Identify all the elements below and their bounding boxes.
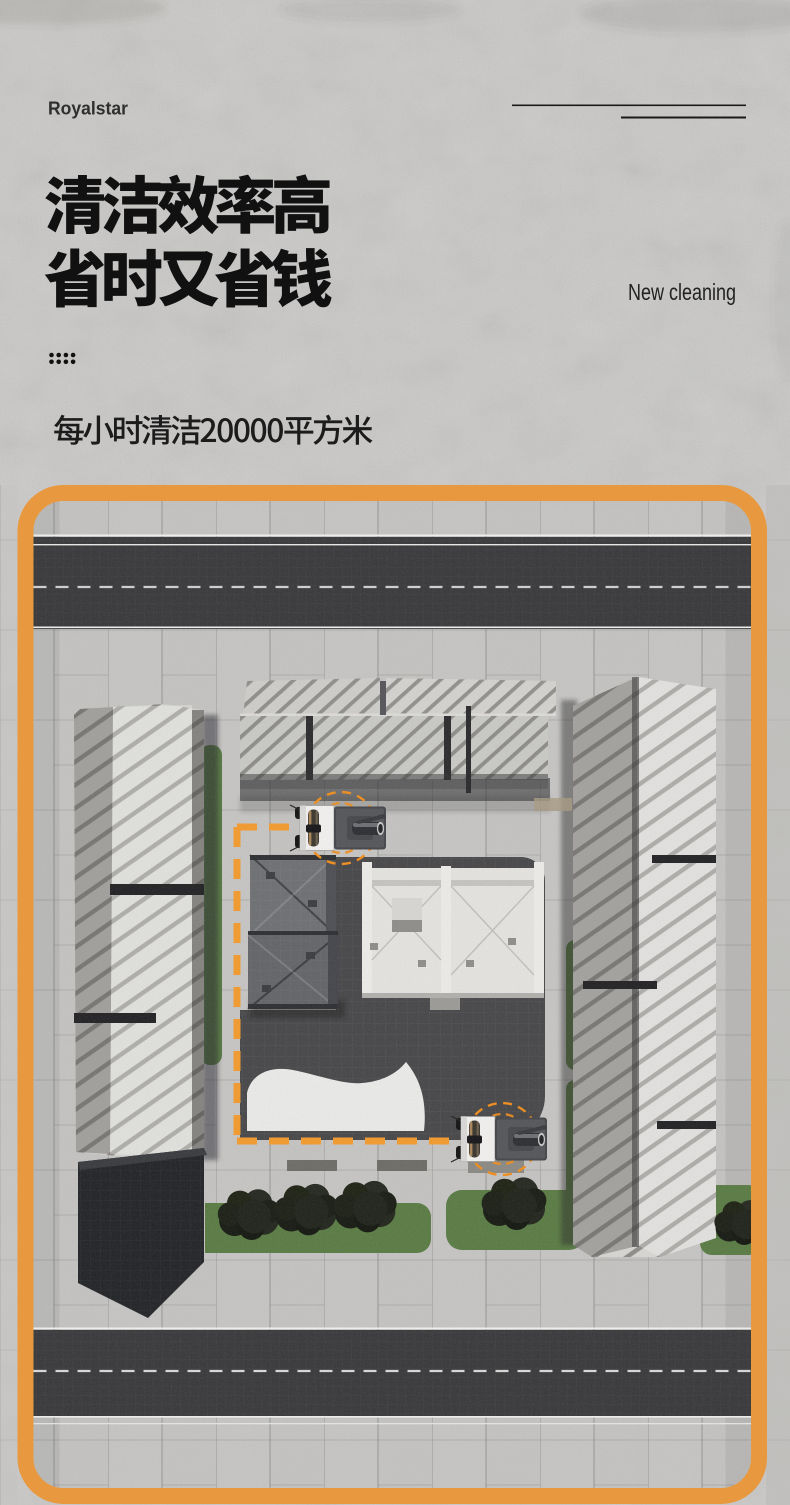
svg-text:New cleaning: New cleaning <box>628 279 736 305</box>
svg-text:Royalstar: Royalstar <box>48 98 128 119</box>
